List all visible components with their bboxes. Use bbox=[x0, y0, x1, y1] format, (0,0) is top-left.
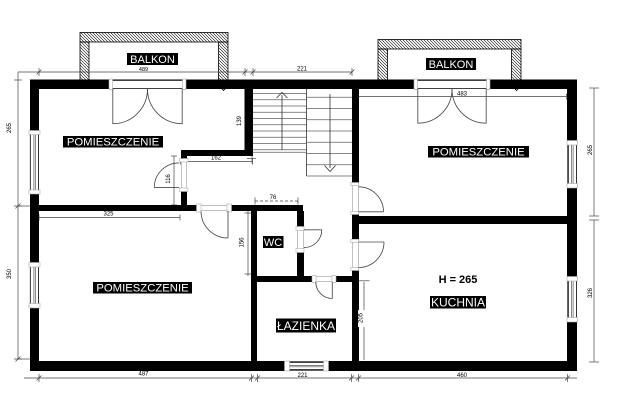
svg-text:BALKON: BALKON bbox=[130, 54, 175, 66]
svg-text:WC: WC bbox=[264, 237, 282, 249]
svg-text:265: 265 bbox=[588, 144, 594, 155]
svg-text:489: 489 bbox=[139, 67, 148, 73]
svg-text:483: 483 bbox=[457, 92, 468, 98]
svg-text:162: 162 bbox=[211, 156, 222, 162]
svg-text:325: 325 bbox=[103, 212, 114, 218]
svg-text:KUCHNIA: KUCHNIA bbox=[431, 295, 485, 309]
svg-text:221: 221 bbox=[297, 67, 308, 73]
svg-text:POMIESZCZENIE: POMIESZCZENIE bbox=[67, 137, 160, 149]
svg-text:POMIESZCZENIE: POMIESZCZENIE bbox=[432, 147, 525, 159]
svg-text:139: 139 bbox=[237, 115, 243, 126]
svg-text:POMIESZCZENIE: POMIESZCZENIE bbox=[96, 283, 189, 295]
svg-text:487: 487 bbox=[138, 372, 149, 378]
svg-text:156: 156 bbox=[240, 237, 246, 248]
svg-text:221: 221 bbox=[297, 373, 308, 379]
svg-text:350: 350 bbox=[7, 268, 13, 279]
svg-text:116: 116 bbox=[166, 174, 172, 184]
svg-text:265: 265 bbox=[7, 122, 13, 133]
svg-text:460: 460 bbox=[457, 373, 468, 379]
svg-text:BALKON: BALKON bbox=[429, 59, 474, 71]
svg-text:76: 76 bbox=[270, 195, 277, 201]
svg-text:205: 205 bbox=[359, 312, 365, 323]
svg-text:ŁAZIENKA: ŁAZIENKA bbox=[277, 319, 335, 333]
svg-text:326: 326 bbox=[588, 287, 594, 298]
svg-text:H = 265: H = 265 bbox=[439, 274, 478, 286]
